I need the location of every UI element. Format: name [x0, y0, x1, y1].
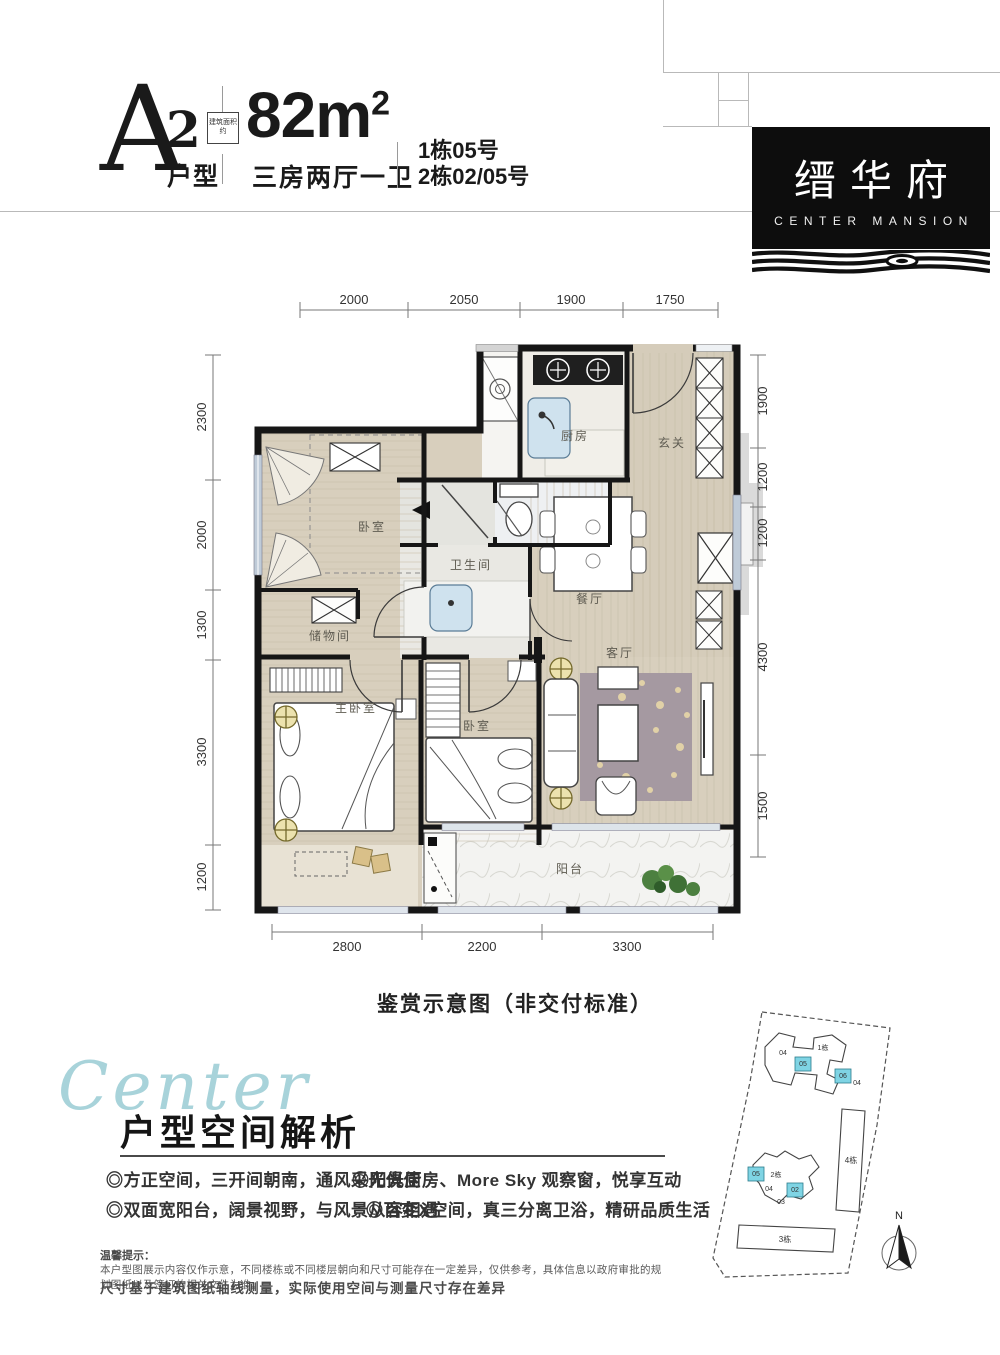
unit-label: 04: [853, 1080, 861, 1087]
unit-label: 04: [779, 1050, 787, 1057]
dim-bottom-2: 2200: [468, 939, 497, 954]
bedroom2-bed: [426, 738, 532, 822]
dim-right-4: 4300: [755, 643, 770, 672]
brand-logo: 缙华府 CENTER MANSION: [752, 127, 990, 249]
plan-letter-sup: 2: [166, 100, 201, 159]
header-sep2: [397, 142, 398, 188]
grid-line: [718, 100, 748, 101]
unit-label: 03: [777, 1199, 785, 1206]
brand-name-cn: 缙华府: [752, 127, 990, 214]
dim-left-3: 1300: [194, 611, 209, 640]
unit-line1: 1栋05号: [418, 138, 529, 164]
unit-label: 06: [839, 1073, 847, 1080]
dim-left-4: 3300: [194, 738, 209, 767]
fridge-cabinet: [698, 533, 733, 583]
bedroom1-bay-cabinet: [330, 443, 380, 471]
dim-left-1: 2300: [194, 403, 209, 432]
label-storage: 储物间: [309, 628, 351, 643]
disclaimer-line2: 尺寸基于建筑图纸轴线测量，实际使用空间与测量尺寸存在差异: [100, 1277, 660, 1297]
dim-right-3: 1200: [755, 519, 770, 548]
area-badge: 建筑面积约: [207, 112, 239, 144]
coffee-table: [598, 705, 638, 761]
header-sep: [222, 154, 223, 184]
analysis-divider: [120, 1155, 665, 1157]
analysis-title: 户型空间解析: [120, 1104, 360, 1156]
dim-left-5: 1200: [194, 863, 209, 892]
north-label: N: [895, 1210, 903, 1222]
entry-shoe-cabinet: [696, 358, 723, 478]
grid-line: [663, 72, 1000, 73]
laundry-closet: [482, 357, 518, 421]
unit-numbers: 1栋05号 2栋02/05号: [418, 138, 529, 190]
unit-label: 04: [765, 1186, 773, 1193]
building-label: 4栋: [845, 1155, 857, 1165]
sofa: [544, 679, 578, 787]
vanity-sink: [404, 581, 530, 637]
floorplan-drawing: 厨房 玄关 卧室 卫生间 餐厅 储物间 主卧室 卧室 客厅 阳台: [190, 285, 840, 975]
poster-page: A 2 户型 建筑面积约 82m2 三房两厅一卫 1栋05号 2栋02/05号 …: [0, 0, 1000, 1355]
balcony-utility: [424, 833, 456, 903]
bedroom2-wardrobe: [426, 663, 460, 737]
label-living: 客厅: [606, 645, 634, 660]
layout-text: 三房两厅一卫: [252, 158, 414, 194]
grid-line: [663, 0, 664, 72]
dim-bottom-3: 3300: [613, 939, 642, 954]
kitchen-stove: [533, 355, 623, 385]
building-label: 1栋: [818, 1043, 829, 1052]
dim-top-1: 2000: [340, 292, 369, 307]
label-dining: 餐厅: [576, 591, 604, 606]
storage-cabinet: [312, 597, 356, 623]
north-compass: N: [882, 1210, 916, 1270]
unit-label: 05: [752, 1171, 760, 1178]
area-sup: 2: [371, 85, 389, 123]
building-label: 3栋: [779, 1234, 791, 1244]
grid-line: [718, 72, 719, 126]
building-label: 2栋: [771, 1170, 782, 1179]
dim-left-2: 2000: [194, 521, 209, 550]
dim-right-1: 1900: [755, 387, 770, 416]
label-bathroom: 卫生间: [450, 558, 492, 572]
label-kitchen: 厨房: [561, 428, 589, 443]
label-master: 主卧室: [335, 700, 377, 715]
label-entry: 玄关: [658, 435, 686, 450]
disclaimer-title: 温馨提示：: [100, 1247, 155, 1263]
dim-bottom-1: 2800: [333, 939, 362, 954]
area-value: 82m2: [246, 78, 389, 152]
unit-label: 02: [791, 1187, 799, 1194]
area-number: 82m: [246, 79, 371, 151]
unit-line2: 2栋02/05号: [418, 164, 529, 190]
grid-line: [748, 72, 749, 126]
kitchen-sink: [528, 398, 570, 458]
armchair: [596, 777, 636, 815]
tv-cabinet: [701, 683, 713, 775]
header-sep: [222, 86, 223, 112]
label-balcony: 阳台: [556, 861, 584, 876]
bedroom2-shelf: [508, 661, 536, 681]
unit-label: 05: [799, 1061, 807, 1068]
side-table: [598, 667, 638, 689]
dim-right-5: 1500: [755, 792, 770, 821]
bullet-2: ◎阳光厨房、More Sky 观察窗，悦享互动: [352, 1166, 682, 1191]
dim-top-3: 1900: [557, 292, 586, 307]
building-3: 3栋: [737, 1225, 835, 1252]
bullet-4: ◎百变X空间，真三分离卫浴，精研品质生活: [366, 1196, 710, 1221]
dim-top-2: 2050: [450, 292, 479, 307]
dim-right-2: 1200: [755, 463, 770, 492]
label-bedroom2: 卧室: [463, 718, 491, 733]
dim-top-4: 1750: [656, 292, 685, 307]
brand-name-en: CENTER MANSION: [752, 214, 990, 228]
site-plan: 05 06 04 04 1栋 05 02 04 03 2栋 4栋 3栋: [705, 1005, 960, 1305]
grid-line: [663, 126, 752, 127]
logo-ripple-pattern: [752, 250, 990, 274]
plan-type-label: 户型: [167, 157, 219, 193]
label-bedroom1: 卧室: [358, 519, 386, 534]
